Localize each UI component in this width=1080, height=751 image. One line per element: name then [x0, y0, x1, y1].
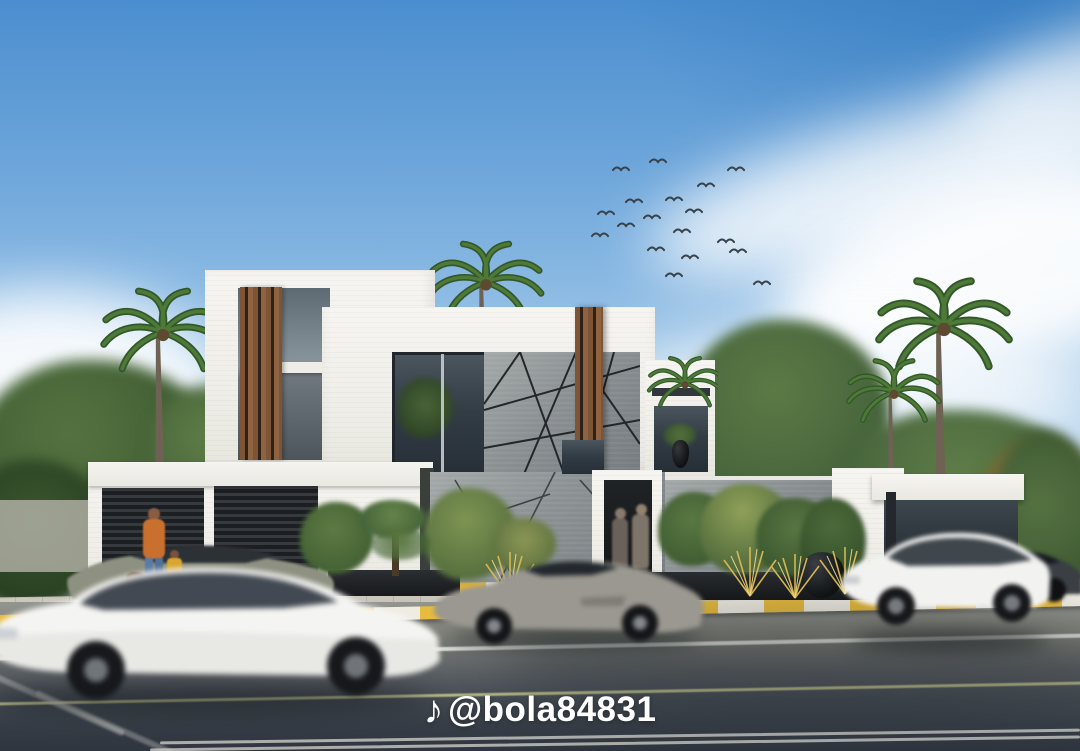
architectural-render-scene: ♪@bola84831 — [0, 0, 1080, 751]
palm-fronds-accent — [588, 300, 718, 410]
entrance-person-2-head — [636, 504, 647, 515]
soffit-window — [562, 440, 604, 474]
watermark: ♪@bola84831 — [424, 688, 657, 733]
gray-sports-car — [430, 546, 710, 650]
watermark-handle: @bola84831 — [448, 690, 656, 729]
garage-lintel-beam — [88, 462, 433, 486]
tiktok-music-note-icon: ♪ — [424, 688, 445, 732]
white-suv-right — [838, 518, 1056, 650]
white-suv-foreground — [0, 540, 457, 710]
entrance-person-1-head — [615, 508, 626, 519]
left-block-wood-slats — [240, 287, 282, 460]
window-mullion — [441, 354, 444, 472]
